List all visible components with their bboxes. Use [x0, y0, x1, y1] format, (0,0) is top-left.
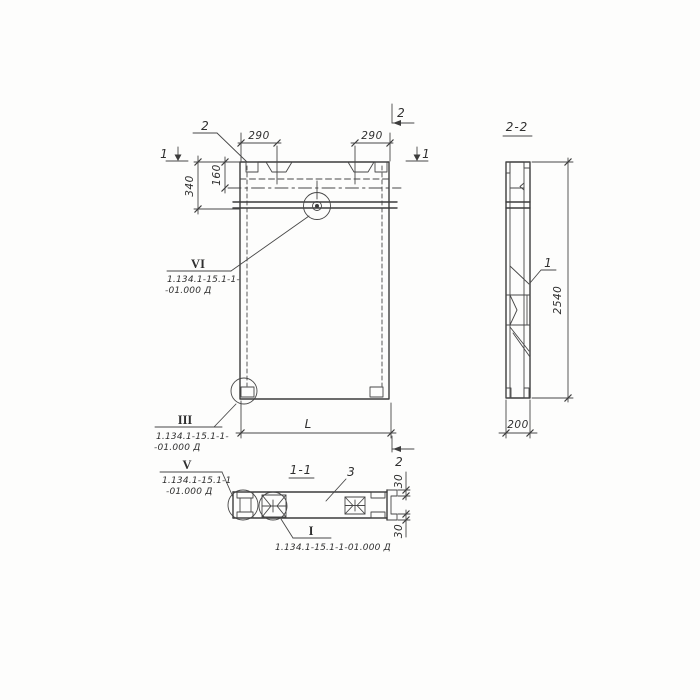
- marker-2-top-label: 2: [397, 106, 405, 120]
- dim-L-value: L: [305, 417, 312, 431]
- detail-iii-ref-1: 1.134.1-15.1-1-: [156, 432, 229, 442]
- marker-2-bottom-label: 2: [395, 455, 403, 469]
- dim-30-bottom-value: 30: [393, 524, 405, 538]
- section-1-1-title: 1-1: [289, 463, 314, 478]
- section-1-1-title-text: 1-1: [290, 463, 313, 477]
- callout-3-label: 3: [347, 465, 355, 479]
- detail-i-ref: 1.134.1-15.1-1-01.000 Д: [275, 543, 391, 553]
- blueprint-page: VI 1.134.1-15.1-1- -01.000 Д III 1.134.1…: [0, 0, 700, 700]
- detail-iii-ref-2: -01.000 Д: [154, 443, 200, 453]
- dim-290-right-value: 290: [361, 130, 383, 142]
- section-2-2-title-text: 2-2: [506, 120, 529, 134]
- section-2-2-title: 2-2: [503, 120, 532, 136]
- dim-200-value: 200: [507, 419, 529, 431]
- detail-vi-ref-1: 1.134.1-15.1-1-: [167, 275, 240, 285]
- detail-v-numeral: V: [182, 458, 191, 472]
- detail-iii-numeral: III: [178, 413, 193, 427]
- detail-v-ref-2: -01.000 Д: [166, 487, 212, 497]
- marker-1-right-label: 1: [422, 147, 430, 161]
- detail-vi-ref-2: -01.000 Д: [165, 286, 211, 296]
- detail-i-numeral: I: [309, 524, 314, 538]
- dim-290-left-value: 290: [248, 130, 270, 142]
- callout-2-label: 2: [201, 119, 209, 133]
- dim-160-value: 160: [211, 164, 223, 186]
- paper-background: [0, 0, 700, 700]
- callout-1-label: 1: [544, 256, 552, 270]
- technical-drawing: VI 1.134.1-15.1-1- -01.000 Д III 1.134.1…: [0, 0, 700, 700]
- detail-vi-numeral: VI: [191, 257, 205, 271]
- dim-30-top-value: 30: [393, 474, 405, 488]
- dim-2540-value: 2540: [552, 286, 564, 315]
- marker-1-left-label: 1: [160, 147, 168, 161]
- detail-v-ref-1: 1.134.1-15.1-1: [162, 476, 231, 486]
- dim-340-value: 340: [184, 175, 196, 197]
